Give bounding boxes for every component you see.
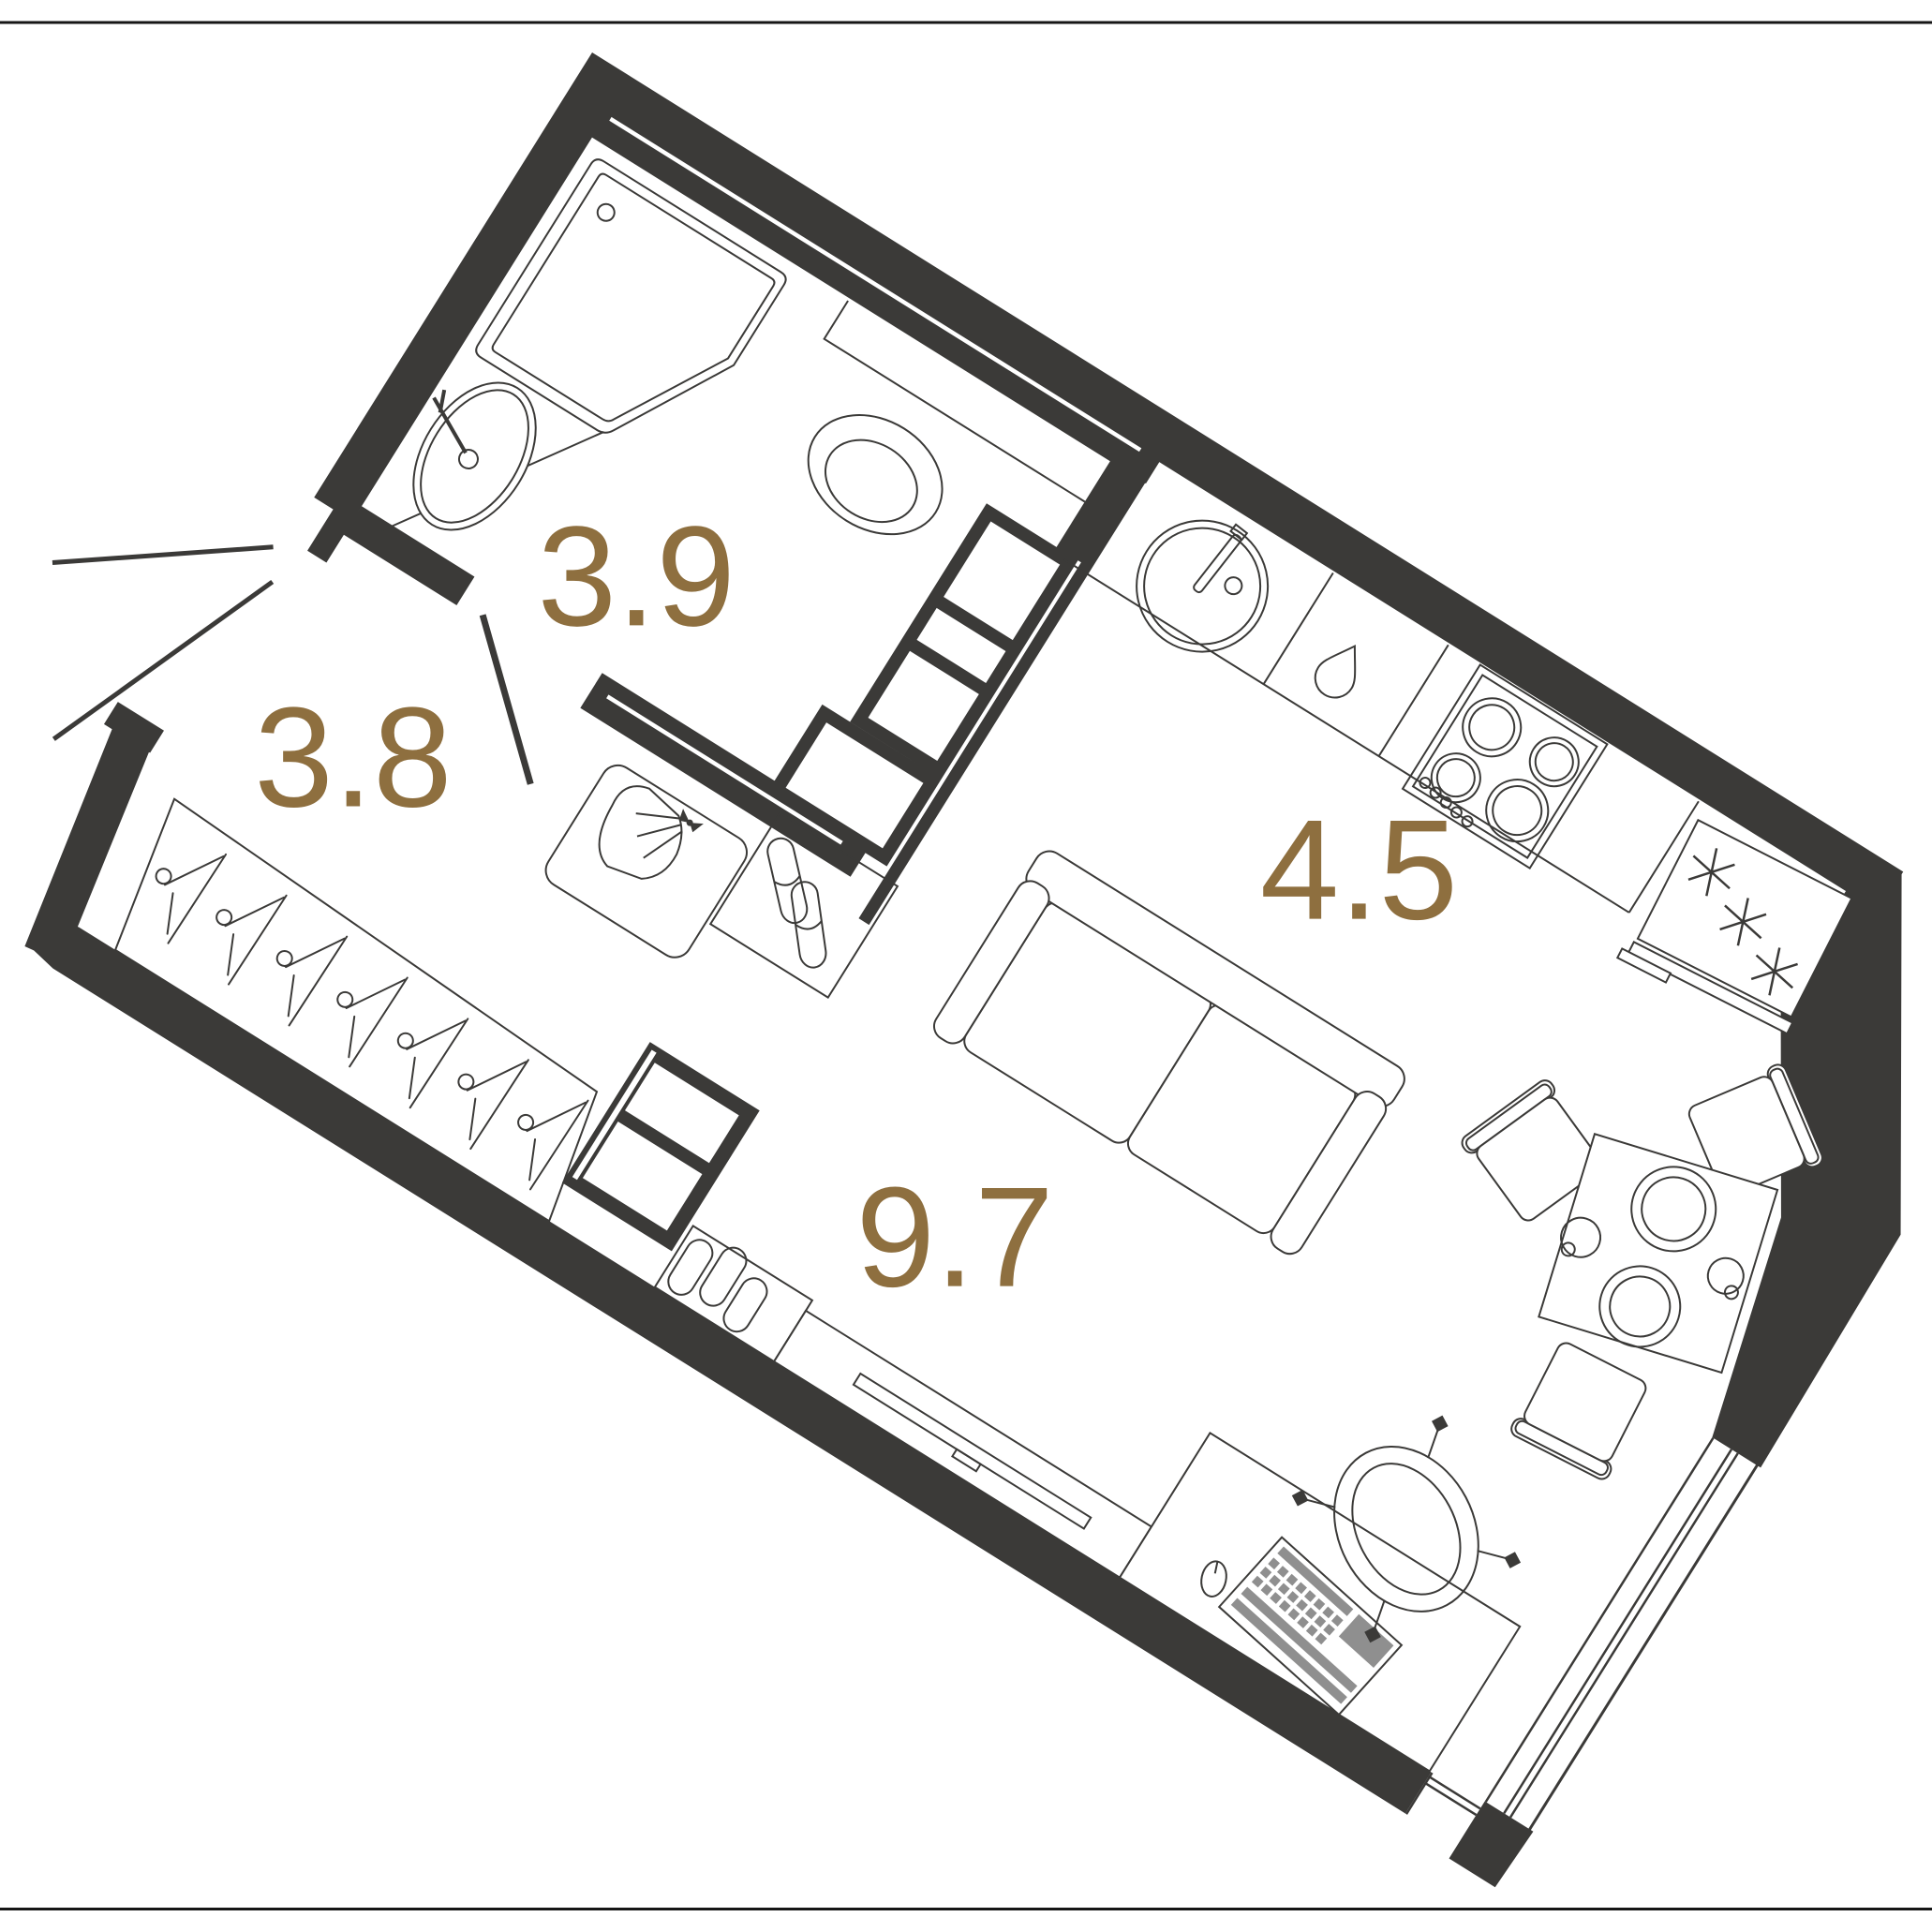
svg-text:3.8: 3.8 — [254, 677, 452, 837]
svg-text:3.9: 3.9 — [538, 497, 736, 656]
svg-text:4.5: 4.5 — [1260, 791, 1458, 950]
svg-text:9.7: 9.7 — [855, 1158, 1053, 1317]
